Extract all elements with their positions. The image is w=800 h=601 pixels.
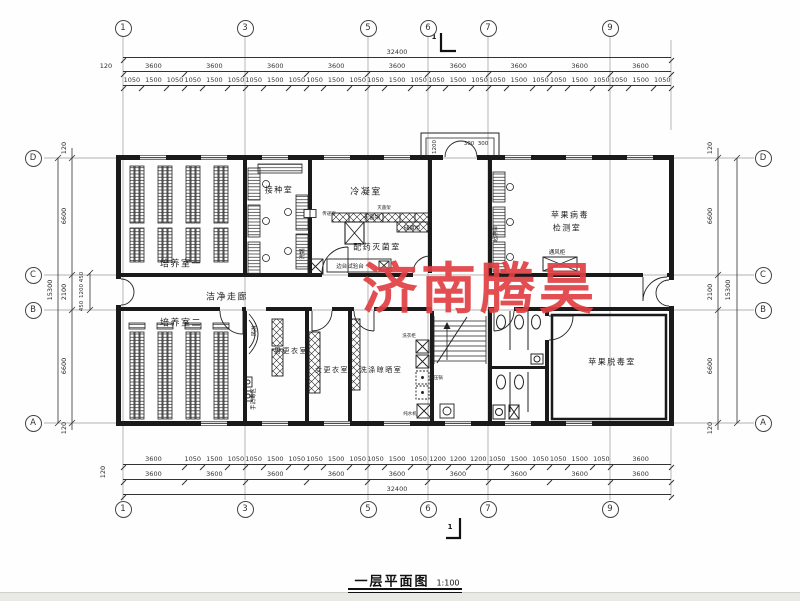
title-underline-thin xyxy=(348,592,462,593)
dim-segment: 1050 xyxy=(592,454,610,464)
grid-bubble-top-5: 5 xyxy=(360,20,377,37)
dim-segment: 1500 xyxy=(506,75,531,85)
dim-row-bottom-sub: 3600105015001050105015001050105015001050… xyxy=(123,453,671,465)
dim-segment: 1500 xyxy=(567,75,592,85)
floor-plan-canvas: 1 3 5 6 7 9 1 3 5 6 7 9 D C B A D C B A … xyxy=(0,0,800,600)
room-label-condensation-room: 冷凝室 xyxy=(350,185,382,198)
dim-segment: 3600 xyxy=(184,469,245,479)
room-label-virus-detection-line2: 检测室 xyxy=(553,223,582,234)
room-label-culture-room-2: 培养室二 xyxy=(160,316,202,329)
dim-segment: 1050 xyxy=(166,75,184,85)
grid-bubble-bottom-6: 6 xyxy=(420,501,437,518)
dim-segment: 1500 xyxy=(384,454,409,464)
watermark-text: 济南腾昊 xyxy=(362,244,598,324)
dim-segment: 3600 xyxy=(306,61,367,71)
grid-bubble-bottom-3: 3 xyxy=(237,501,254,518)
room-label-washing-drying: 洗涤晾晒室 xyxy=(360,365,403,375)
dim-segment: 3600 xyxy=(306,469,367,479)
equip-label-sterilizer-pot: 灭菌锅 xyxy=(364,213,381,221)
dim-left-corridor-450b: 450 xyxy=(79,301,85,312)
dim-segment: 1500 xyxy=(323,75,348,85)
dim-segment: 1050 xyxy=(532,75,550,85)
dim-segment: 1200 xyxy=(468,454,488,464)
dim-row-bottom-overall: 32400 xyxy=(123,483,671,495)
dim-segment: 3600 xyxy=(245,469,306,479)
dim-segment: 1050 xyxy=(410,454,428,464)
grid-bubble-bottom-9: 9 xyxy=(602,501,619,518)
grid-bubble-right-A: A xyxy=(755,415,772,432)
grid-bubble-top-1: 1 xyxy=(115,20,132,37)
dim-segment: 1500 xyxy=(384,75,409,85)
dim-segment: 1050 xyxy=(488,75,506,85)
dim-left-6600-upper: 6600 xyxy=(60,208,68,225)
dim-segment: 1050 xyxy=(428,75,446,85)
equip-label-wash-cabinet: 洗衣柜 xyxy=(402,333,416,339)
dim-segment: 1050 xyxy=(227,75,245,85)
dim-segment: 3600 xyxy=(367,469,428,479)
room-label-culture-room-1: 培养室一 xyxy=(160,257,202,270)
dim-segment: 3600 xyxy=(488,61,549,71)
equip-label-side-test-bench: 边台试验台 xyxy=(336,262,364,270)
dim-segment: 1050 xyxy=(610,75,628,85)
grid-bubble-top-7: 7 xyxy=(480,20,497,37)
dim-segment: 1050 xyxy=(471,75,489,85)
equip-label-wash-sink: 洗锅 xyxy=(298,248,306,259)
dim-segment: 3600 xyxy=(123,61,184,71)
dim-right-edge-top: 120 xyxy=(706,142,714,154)
grid-bubble-top-9: 9 xyxy=(602,20,619,37)
dim-segment: 1500 xyxy=(141,75,166,85)
dim-segment: 1500 xyxy=(628,75,653,85)
grid-bubble-bottom-5: 5 xyxy=(360,501,377,518)
section-label-bottom: 1 xyxy=(448,523,453,531)
dim-segment: 1050 xyxy=(306,454,324,464)
dim-segment: 1500 xyxy=(323,454,348,464)
equip-label-storage-cabinet: 储藏柜 xyxy=(404,224,421,232)
dim-porch-300a: 300 xyxy=(464,141,475,147)
dim-row-top-overall: 32400 xyxy=(123,46,671,58)
dim-segment: 1500 xyxy=(202,75,227,85)
dim-segment: 1050 xyxy=(245,75,263,85)
dim-segment: 3600 xyxy=(610,61,671,71)
room-label-women-changing: 女更衣室 xyxy=(315,365,349,375)
dim-segment: 1050 xyxy=(288,454,306,464)
drawing-scale: 1:100 xyxy=(436,579,459,588)
dim-segment: 1050 xyxy=(488,454,506,464)
grid-bubble-left-D: D xyxy=(25,150,42,167)
dim-porch-depth: 1200 xyxy=(432,140,438,154)
grid-bubble-left-A: A xyxy=(25,415,42,432)
dim-segment: 1500 xyxy=(567,454,592,464)
dim-left-overall: 15300 xyxy=(46,280,54,301)
equip-label-water-purifier: 纯水机 xyxy=(403,411,417,417)
equip-label-hand-disinfection: 手消毒区 xyxy=(249,388,257,410)
dim-segment: 1050 xyxy=(184,454,202,464)
dim-segment: 1050 xyxy=(367,454,385,464)
dim-segment: 3600 xyxy=(184,61,245,71)
dim-segment: 3600 xyxy=(367,61,428,71)
dim-left-6600-lower: 6600 xyxy=(60,358,68,375)
dim-left-edge-top: 120 xyxy=(60,142,68,154)
dim-left-corridor-1200: 1200 xyxy=(79,284,85,298)
dim-right-edge-bottom: 120 xyxy=(706,422,714,434)
dim-segment: 1050 xyxy=(549,454,567,464)
title-underline-thick xyxy=(348,588,462,590)
grid-bubble-left-C: C xyxy=(25,267,42,284)
dim-left-2100: 2100 xyxy=(60,284,68,301)
dim-segment: 3600 xyxy=(488,469,549,479)
grid-bubble-right-C: C xyxy=(755,267,772,284)
dim-right-2100: 2100 xyxy=(706,284,714,301)
dim-segment: 3600 xyxy=(123,469,184,479)
dim-segment: 3600 xyxy=(549,61,610,71)
dim-segment: 1050 xyxy=(532,454,550,464)
room-label-virus-detection-line1: 苹果病毒 xyxy=(551,210,589,221)
room-label-virus-free-room: 苹果脱毒室 xyxy=(588,357,636,368)
dim-segment: 3600 xyxy=(610,454,671,464)
grid-bubble-top-6: 6 xyxy=(420,20,437,37)
dim-segment: 1050 xyxy=(245,454,263,464)
dim-row-top-sub: 1050150010501050150010501050150010501050… xyxy=(123,74,671,86)
equip-label-sterilizer-rack: 灭菌架 xyxy=(377,205,391,211)
dim-porch-300b: 300 xyxy=(478,141,489,147)
dim-segment: 3600 xyxy=(427,469,488,479)
dim-left-corridor-450a: 450 xyxy=(79,272,85,283)
grid-bubble-top-3: 3 xyxy=(237,20,254,37)
dim-segment: 3600 xyxy=(549,469,610,479)
dim-segment: 32400 xyxy=(123,484,671,494)
dim-segment: 3600 xyxy=(123,454,184,464)
grid-bubble-bottom-7: 7 xyxy=(480,501,497,518)
drawing-title: 一层平面图 xyxy=(354,571,429,590)
dim-segment: 1200 xyxy=(428,454,448,464)
dim-segment: 1500 xyxy=(263,454,288,464)
dim-segment: 1050 xyxy=(349,454,367,464)
dim-segment: 1050 xyxy=(288,75,306,85)
room-label-clean-corridor: 洁净走廊 xyxy=(206,290,248,303)
dim-segment: 1200 xyxy=(448,454,468,464)
dim-segment: 1500 xyxy=(506,454,531,464)
dim-right-overall: 15300 xyxy=(724,280,732,301)
dim-segment: 1500 xyxy=(202,454,227,464)
dim-right-6600-upper: 6600 xyxy=(706,208,714,225)
dim-row-bottom-bays: 360036003600360036003600360036003600 xyxy=(123,468,671,480)
room-label-inoculation-room: 接种室 xyxy=(265,185,294,196)
grid-bubble-left-B: B xyxy=(25,302,42,319)
dim-segment: 1050 xyxy=(410,75,428,85)
dim-segment: 1050 xyxy=(653,75,671,85)
grid-bubble-right-D: D xyxy=(755,150,772,167)
dim-right-6600-lower: 6600 xyxy=(706,358,714,375)
dim-bottom-edge-120: 120 xyxy=(99,466,107,478)
dim-segment: 1500 xyxy=(263,75,288,85)
dim-row-top-bays: 360036003600360036003600360036003600 xyxy=(123,60,671,72)
dim-segment: 3600 xyxy=(427,61,488,71)
dim-top-edge-120: 120 xyxy=(100,62,112,70)
grid-bubble-right-B: B xyxy=(755,302,772,319)
dim-segment: 1050 xyxy=(349,75,367,85)
equip-label-autoclave: 高压锅 xyxy=(429,375,443,381)
dim-segment: 32400 xyxy=(123,47,671,57)
dim-segment: 1050 xyxy=(123,75,141,85)
room-label-men-changing: 男更衣室 xyxy=(274,346,308,356)
dim-segment: 1050 xyxy=(592,75,610,85)
equip-label-clean-bench: 超净台 xyxy=(491,226,499,243)
equip-label-air-shower: 风淋 xyxy=(250,325,258,336)
grid-bubble-bottom-1: 1 xyxy=(115,501,132,518)
dim-segment: 1500 xyxy=(445,75,470,85)
dim-segment: 1050 xyxy=(549,75,567,85)
dim-segment: 1050 xyxy=(306,75,324,85)
dim-segment: 3600 xyxy=(245,61,306,71)
dim-segment: 1050 xyxy=(227,454,245,464)
dim-left-edge-bottom: 120 xyxy=(60,422,68,434)
dim-segment: 3600 xyxy=(610,469,671,479)
toilet-fixtures xyxy=(493,311,543,419)
equip-label-pass-window: 传递窗 xyxy=(322,211,336,217)
dim-segment: 1050 xyxy=(184,75,202,85)
dim-segment: 1050 xyxy=(367,75,385,85)
